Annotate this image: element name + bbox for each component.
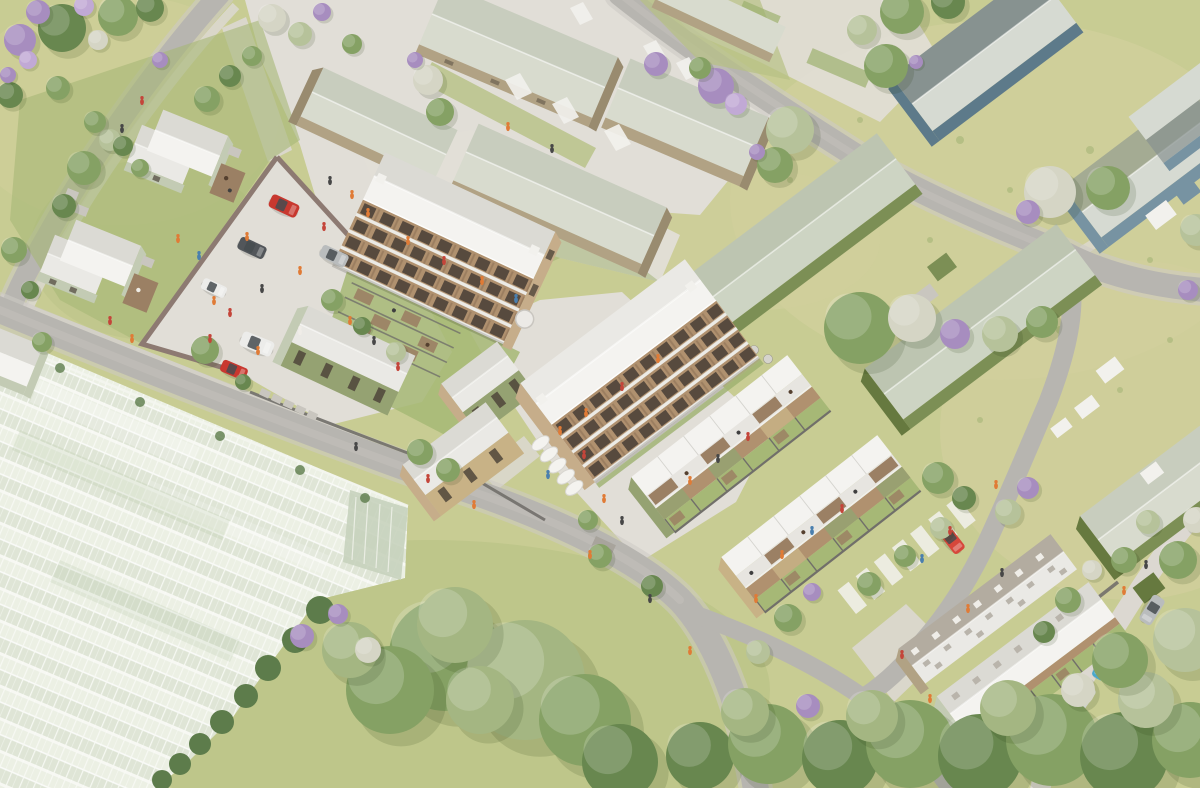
scene-canvas bbox=[0, 0, 1200, 788]
aerial-rendering bbox=[0, 0, 1200, 788]
